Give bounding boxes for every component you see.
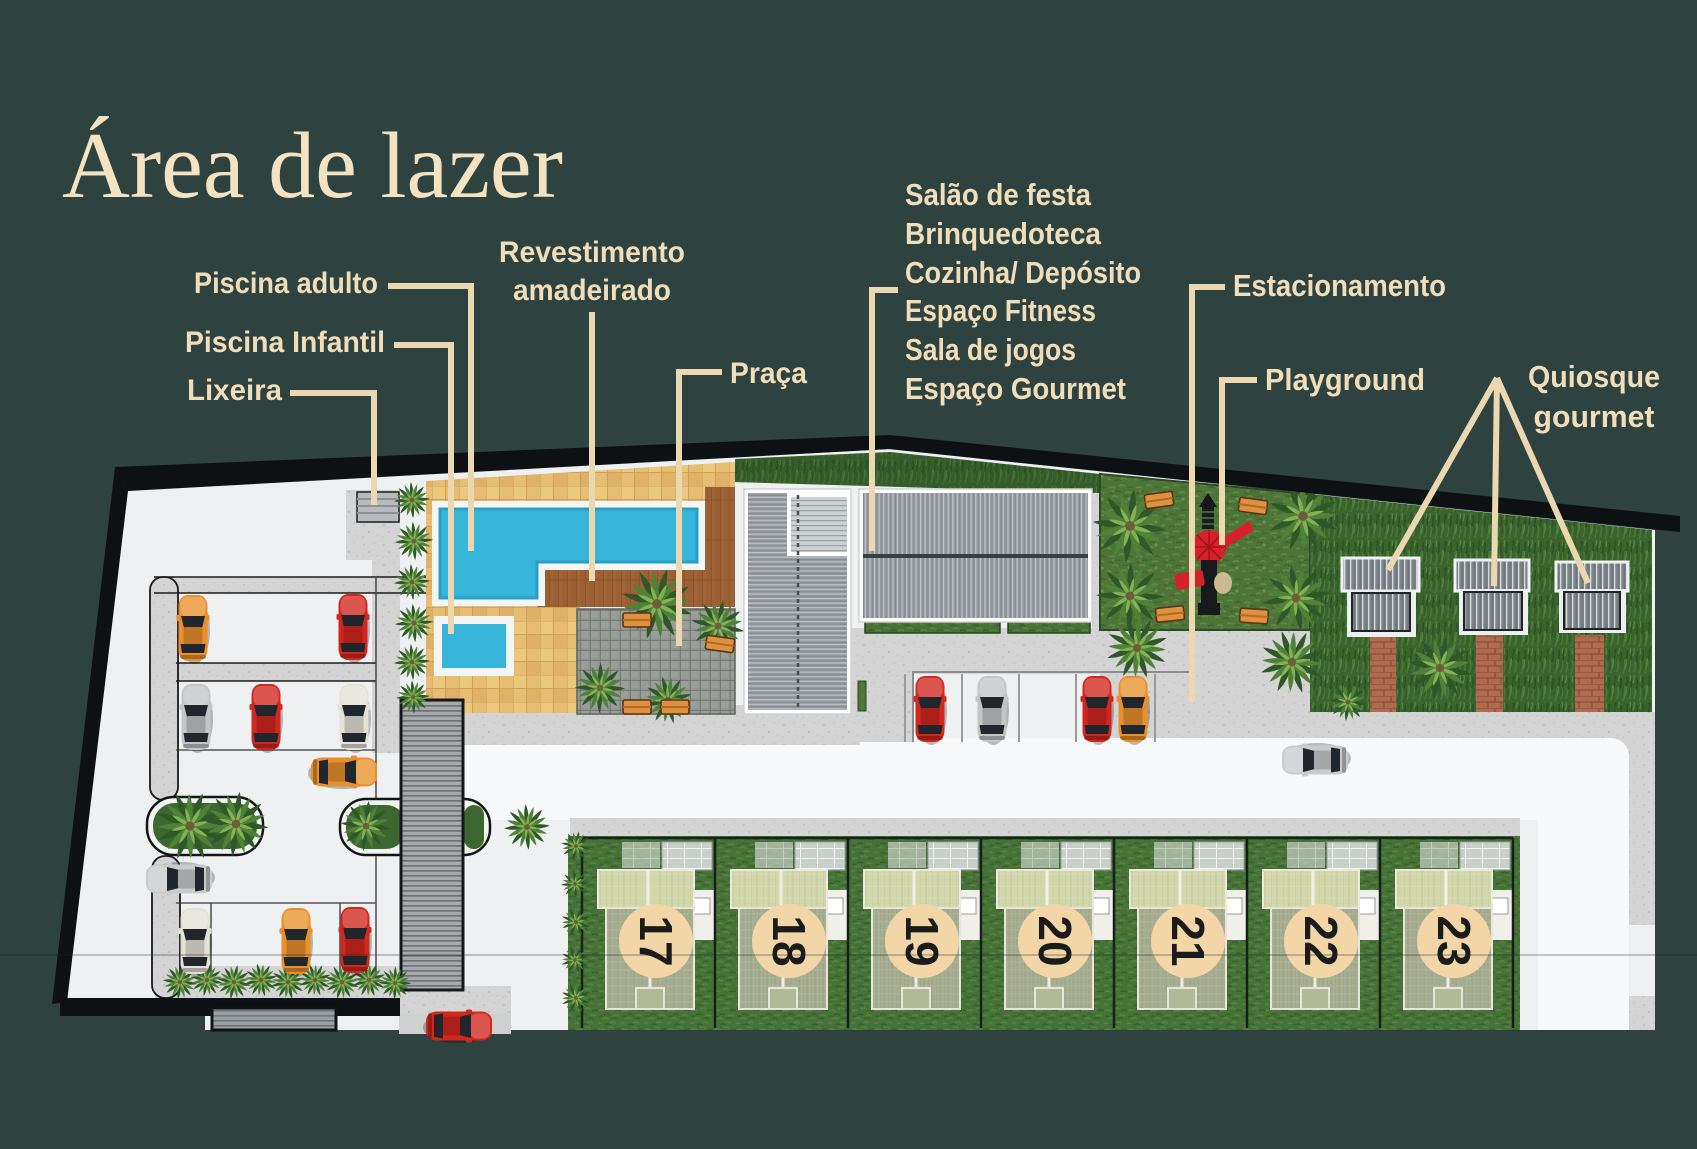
svg-text:17: 17: [630, 915, 682, 966]
svg-text:Espaço Gourmet: Espaço Gourmet: [905, 371, 1126, 406]
svg-text:Sala de jogos: Sala de jogos: [905, 332, 1076, 367]
svg-text:Lixeira: Lixeira: [187, 374, 282, 407]
svg-text:gourmet: gourmet: [1534, 399, 1655, 434]
svg-text:Cozinha/ Depósito: Cozinha/ Depósito: [905, 255, 1141, 290]
svg-text:Estacionamento: Estacionamento: [1233, 268, 1446, 303]
svg-text:amadeirado: amadeirado: [513, 274, 671, 307]
svg-text:Revestimento: Revestimento: [499, 236, 685, 269]
svg-text:18: 18: [763, 915, 815, 966]
svg-text:19: 19: [896, 915, 948, 966]
svg-text:Piscina adulto: Piscina adulto: [194, 267, 378, 300]
svg-text:Piscina Infantil: Piscina Infantil: [185, 326, 385, 359]
svg-text:22: 22: [1295, 915, 1347, 966]
svg-text:21: 21: [1162, 915, 1214, 966]
svg-text:23: 23: [1428, 915, 1480, 966]
svg-text:Brinquedoteca: Brinquedoteca: [905, 216, 1102, 251]
svg-text:20: 20: [1029, 915, 1081, 966]
svg-text:Quiosque: Quiosque: [1528, 359, 1660, 394]
svg-text:Playground: Playground: [1265, 362, 1425, 397]
svg-text:Praça: Praça: [730, 357, 807, 390]
svg-text:Salão de festa: Salão de festa: [905, 177, 1092, 212]
svg-text:Área de lazer: Área de lazer: [62, 114, 563, 218]
svg-text:Espaço Fitness: Espaço Fitness: [905, 293, 1096, 328]
